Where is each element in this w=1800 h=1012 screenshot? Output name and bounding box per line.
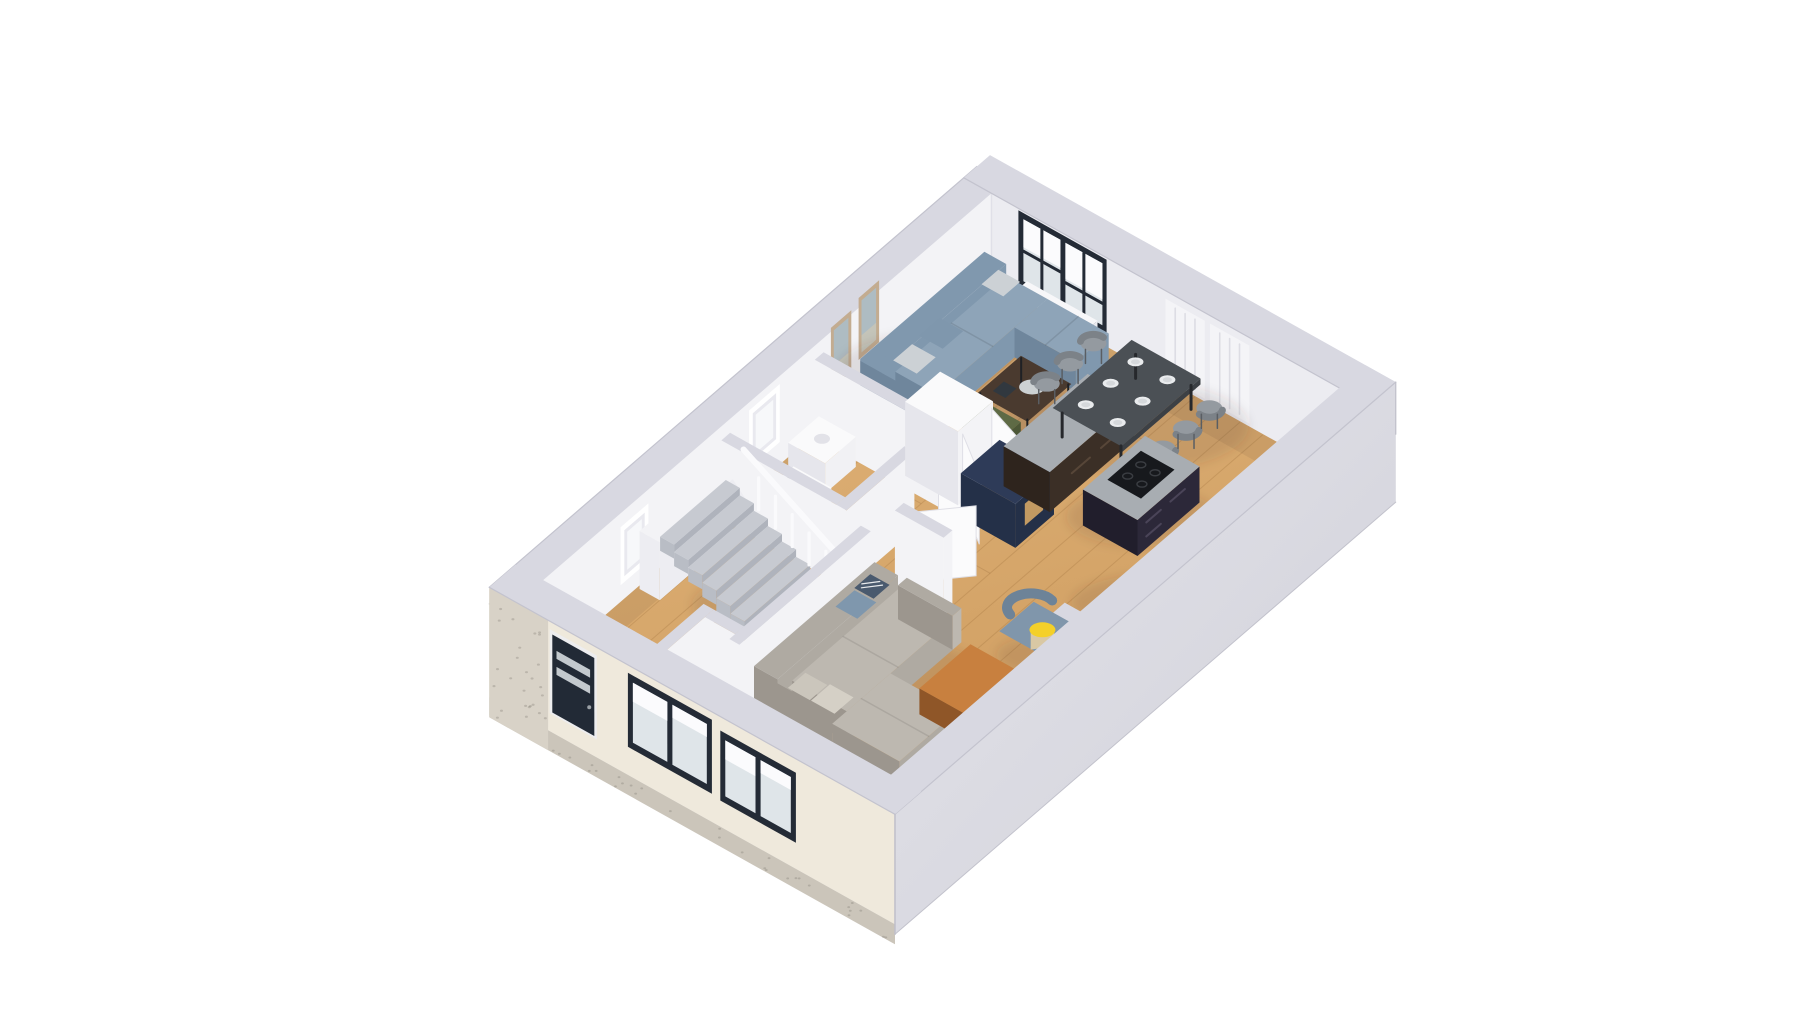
floor-plan-canvas	[0, 0, 1800, 1012]
floor-plan-3d-render	[0, 0, 1800, 1012]
